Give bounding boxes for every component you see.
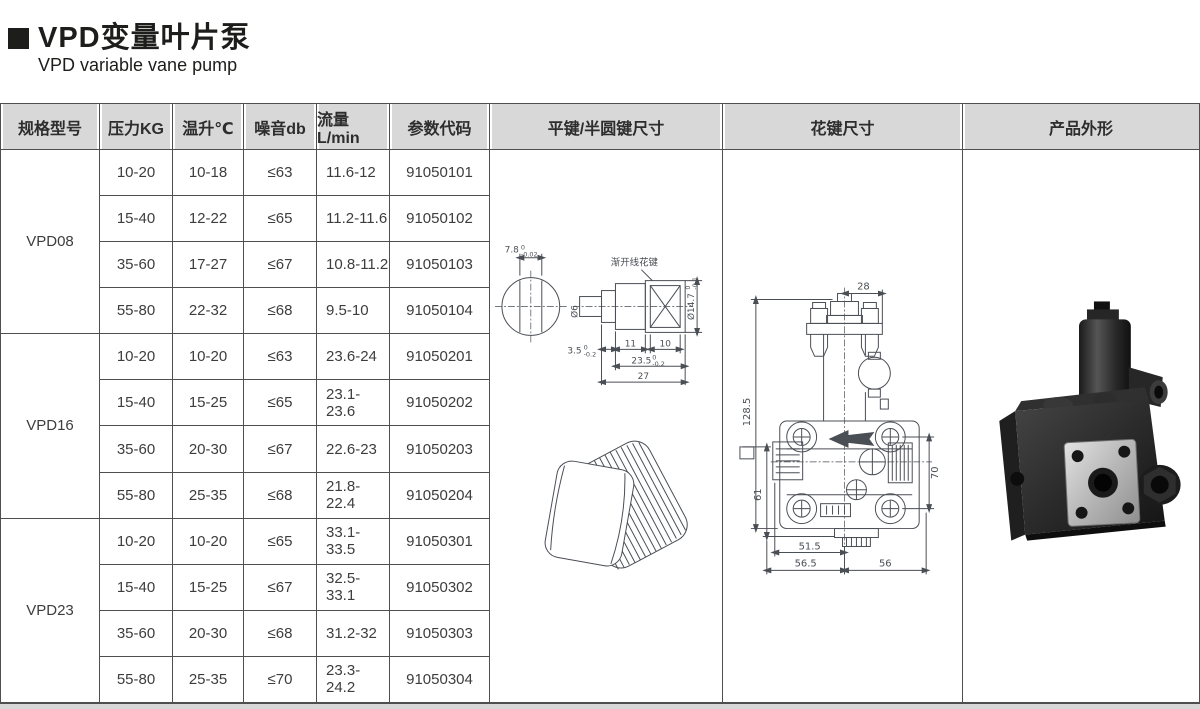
cell-code: 91050302 <box>390 564 490 610</box>
dim-bottom-width-1: 51.5 <box>799 541 821 552</box>
cell-flow: 32.5-33.1 <box>317 564 390 610</box>
cell-temp: 20-30 <box>173 425 244 471</box>
col-header-appearance: 产品外形 <box>963 104 1199 149</box>
cell-flow: 9.5-10 <box>317 287 390 333</box>
cell-temp: 10-18 <box>173 149 244 195</box>
product-photo-cell <box>963 149 1199 702</box>
dim-right-height: 70 <box>930 466 941 479</box>
model-cell-vpd23: VPD23 <box>1 518 100 702</box>
dim-step: 3.5 <box>567 346 581 356</box>
page-subtitle: VPD variable vane pump <box>38 56 251 76</box>
product-photo <box>963 150 1199 702</box>
cell-temp: 15-25 <box>173 379 244 425</box>
cell-pressure: 35-60 <box>100 241 173 287</box>
cell-code: 91050304 <box>390 656 490 702</box>
cell-noise: ≤65 <box>244 518 317 564</box>
cell-pressure: 55-80 <box>100 287 173 333</box>
cell-temp: 10-20 <box>173 518 244 564</box>
cell-flow: 23.6-24 <box>317 333 390 379</box>
cell-noise: ≤65 <box>244 379 317 425</box>
cell-code: 91050301 <box>390 518 490 564</box>
cell-flow: 23.3-24.2 <box>317 656 390 702</box>
cell-code: 91050201 <box>390 333 490 379</box>
cell-temp: 17-27 <box>173 241 244 287</box>
cell-noise: ≤67 <box>244 564 317 610</box>
cell-temp: 25-35 <box>173 472 244 518</box>
next-section-header-edge <box>0 703 1200 709</box>
model-cell-vpd16: VPD16 <box>1 333 100 517</box>
cell-noise: ≤63 <box>244 149 317 195</box>
cell-noise: ≤63 <box>244 333 317 379</box>
col-header-code: 参数代码 <box>390 104 490 149</box>
pump-dimension-drawing: 28 128.5 61 70 51.5 56.5 56 <box>723 150 962 702</box>
cell-noise: ≤70 <box>244 656 317 702</box>
cell-code: 91050303 <box>390 610 490 656</box>
spline-type-label: 渐开线花键 <box>611 257 659 269</box>
col-header-pressure: 压力KG <box>100 104 173 149</box>
col-header-noise: 噪音db <box>244 104 317 149</box>
cell-flow: 31.2-32 <box>317 610 390 656</box>
dim-left-height: 61 <box>753 488 764 501</box>
spec-table: 规格型号 压力KG 温升℃ 噪音db 流量L/min 参数代码 平键/半圆键尺寸… <box>0 103 1200 703</box>
cell-pressure: 35-60 <box>100 425 173 471</box>
cell-noise: ≤68 <box>244 472 317 518</box>
dim-bottom-width-3: 56 <box>879 558 892 569</box>
col-header-flow: 流量L/min <box>317 104 390 149</box>
dim-len-body: 11 <box>625 339 636 349</box>
cell-code: 91050204 <box>390 472 490 518</box>
cell-pressure: 55-80 <box>100 656 173 702</box>
cell-pressure: 10-20 <box>100 149 173 195</box>
col-header-key-dims: 平键/半圆键尺寸 <box>490 104 723 149</box>
cell-flow: 10.8-11.2 <box>317 241 390 287</box>
cell-flow: 11.2-11.6 <box>317 195 390 241</box>
cell-code: 91050104 <box>390 287 490 333</box>
col-header-spline-dims: 花键尺寸 <box>723 104 963 149</box>
dim-total-height: 128.5 <box>742 398 753 426</box>
dim-key-width: 7.8 <box>505 246 520 256</box>
dim-len-mid: 23.5 <box>631 356 651 366</box>
flat-key-drawing-cell: 7.8 0 -0.02 渐开线花键 Ø6 3.5 0 -0.2 11 10 23… <box>490 149 723 702</box>
cell-flow: 22.6-23 <box>317 425 390 471</box>
title-block: VPD变量叶片泵 VPD variable vane pump <box>8 24 251 76</box>
cell-pressure: 10-20 <box>100 518 173 564</box>
model-cell-vpd08: VPD08 <box>1 149 100 333</box>
cell-pressure: 15-40 <box>100 195 173 241</box>
col-header-model: 规格型号 <box>1 104 100 149</box>
cell-temp: 15-25 <box>173 564 244 610</box>
cell-pressure: 55-80 <box>100 472 173 518</box>
dim-len-total: 27 <box>638 372 649 382</box>
dim-shaft-dia: Ø6 <box>570 305 581 318</box>
cell-pressure: 10-20 <box>100 333 173 379</box>
cell-noise: ≤65 <box>244 195 317 241</box>
dim-top-width: 28 <box>857 282 870 293</box>
dim-spline-dia-tol-bot: -0.1 <box>691 277 699 290</box>
cell-noise: ≤68 <box>244 287 317 333</box>
cell-pressure: 15-40 <box>100 379 173 425</box>
cell-noise: ≤67 <box>244 425 317 471</box>
dim-key-width-tol-bot: -0.02 <box>521 251 538 259</box>
spline-knob-3d-drawing <box>543 435 693 574</box>
dim-step-tol-bot: -0.2 <box>584 350 597 358</box>
dim-len-spline: 10 <box>660 339 672 349</box>
page-title: VPD变量叶片泵 <box>38 24 251 53</box>
cell-code: 91050101 <box>390 149 490 195</box>
cell-flow: 23.1-23.6 <box>317 379 390 425</box>
cell-pressure: 35-60 <box>100 610 173 656</box>
dim-spline-dia: Ø14.7 <box>686 293 697 320</box>
dim-len-mid-tol-bot: -0.2 <box>652 360 665 368</box>
cell-temp: 12-22 <box>173 195 244 241</box>
cell-temp: 10-20 <box>173 333 244 379</box>
cell-temp: 22-32 <box>173 287 244 333</box>
flat-key-and-spline-shaft-drawing: 7.8 0 -0.02 渐开线花键 Ø6 3.5 0 -0.2 11 10 23… <box>490 150 722 702</box>
cell-pressure: 15-40 <box>100 564 173 610</box>
cell-flow: 33.1-33.5 <box>317 518 390 564</box>
title-bullet-square-icon <box>8 28 29 49</box>
cell-code: 91050203 <box>390 425 490 471</box>
cell-flow: 11.6-12 <box>317 149 390 195</box>
dim-bottom-width-2: 56.5 <box>795 558 817 569</box>
cell-temp: 25-35 <box>173 656 244 702</box>
cell-code: 91050102 <box>390 195 490 241</box>
cell-code: 91050103 <box>390 241 490 287</box>
cell-noise: ≤67 <box>244 241 317 287</box>
cell-noise: ≤68 <box>244 610 317 656</box>
spline-dims-drawing-cell: 28 128.5 61 70 51.5 56.5 56 <box>723 149 963 702</box>
cell-temp: 20-30 <box>173 610 244 656</box>
cell-code: 91050202 <box>390 379 490 425</box>
col-header-temp: 温升℃ <box>173 104 244 149</box>
cell-flow: 21.8-22.4 <box>317 472 390 518</box>
